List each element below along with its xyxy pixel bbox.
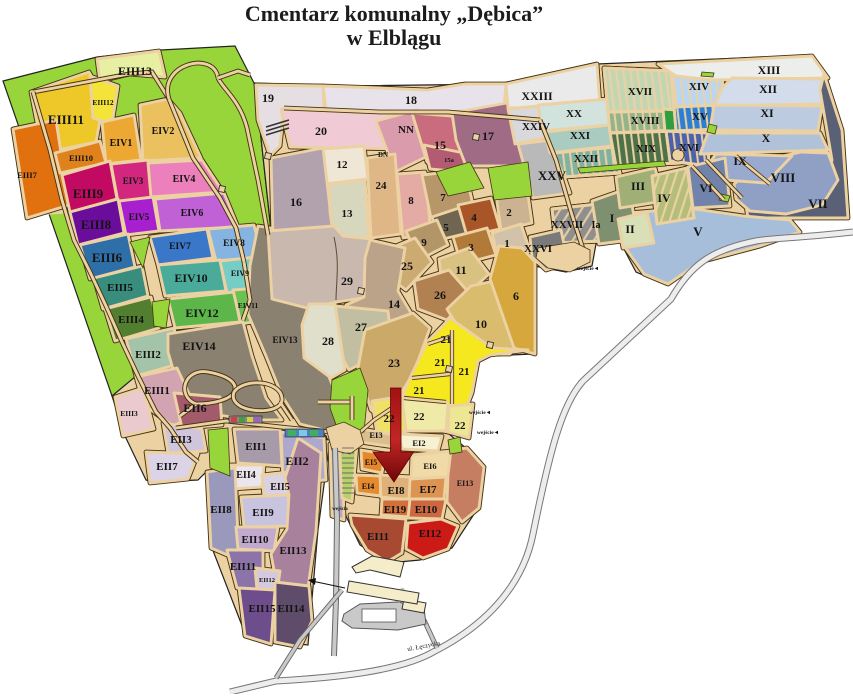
svg-text:XI: XI [760,106,774,120]
svg-text:X: X [762,131,771,145]
svg-text:XX: XX [566,108,582,120]
svg-text:12: 12 [337,159,349,171]
svg-text:XII: XII [759,82,777,96]
svg-text:wejście◄: wejście◄ [577,266,599,272]
svg-text:EIV12: EIV12 [185,306,218,320]
svg-text:IX: IX [733,154,747,168]
svg-text:EIV4: EIV4 [173,174,196,185]
svg-text:19: 19 [262,91,274,105]
svg-text:13: 13 [342,208,354,220]
svg-text:EIV5: EIV5 [129,212,150,222]
svg-text:EII7: EII7 [156,461,178,473]
svg-text:EIV7: EIV7 [169,242,191,252]
svg-text:EIV2: EIV2 [152,126,175,137]
svg-text:21: 21 [459,366,470,378]
svg-text:21: 21 [441,334,452,346]
svg-text:10: 10 [475,317,487,331]
svg-text:XIV: XIV [689,81,709,93]
svg-text:XIX: XIX [636,143,656,155]
svg-text:XXVII: XXVII [551,219,583,231]
svg-text:EII14: EII14 [278,603,305,615]
svg-text:EI3: EI3 [369,430,382,440]
svg-text:XVII: XVII [628,86,652,98]
svg-text:23: 23 [388,356,400,370]
svg-text:Ia: Ia [592,220,601,231]
svg-text:w Elblągu: w Elblągu [347,25,442,50]
svg-text:11: 11 [455,263,466,277]
svg-text:8: 8 [408,195,414,207]
svg-text:VI: VI [699,181,713,195]
svg-text:EIV8: EIV8 [223,239,245,249]
svg-text:XVI: XVI [679,142,699,154]
svg-text:EI4: EI4 [362,482,374,491]
svg-text:XXV: XXV [538,168,567,183]
svg-text:XVIII: XVIII [631,115,660,127]
svg-text:EIII5: EIII5 [107,282,133,294]
svg-text:4: 4 [471,212,477,224]
svg-text:15a: 15a [444,157,455,164]
svg-text:EII3: EII3 [170,434,192,446]
svg-text:22: 22 [455,420,467,432]
svg-text:NN: NN [398,124,414,136]
svg-text:17: 17 [482,129,494,143]
svg-text:EI10: EI10 [415,504,438,516]
svg-text:15: 15 [434,138,446,152]
svg-text:EII4: EII4 [236,470,255,481]
svg-text:EI7: EI7 [419,484,437,496]
svg-text:EII13: EII13 [280,545,307,557]
svg-text:IV: IV [657,191,671,205]
svg-text:EIII6: EIII6 [92,250,123,265]
svg-text:9: 9 [421,237,427,249]
svg-text:EI2: EI2 [412,438,425,448]
svg-text:XXIV: XXIV [522,121,550,133]
svg-text:EIII8: EIII8 [81,217,112,232]
svg-text:EII11: EII11 [230,561,256,573]
svg-text:V: V [693,224,703,239]
svg-text:XXVI: XXVI [524,243,552,255]
svg-text:EIII3: EIII3 [120,409,138,418]
svg-text:wejście◄: wejście◄ [477,430,499,436]
svg-text:EIII11: EIII11 [48,112,84,127]
svg-text:EII12: EII12 [259,577,275,584]
svg-text:1: 1 [504,238,510,250]
svg-text:28: 28 [322,334,334,348]
svg-text:22: 22 [414,411,426,423]
svg-text:EIII2: EIII2 [135,349,161,361]
svg-text:EIV1: EIV1 [110,138,133,149]
svg-text:EIII7: EIII7 [17,170,38,180]
svg-text:7: 7 [440,192,446,204]
svg-text:6: 6 [513,289,519,303]
svg-text:EIII1: EIII1 [144,385,170,397]
svg-text:24: 24 [376,180,388,192]
svg-text:EI5: EI5 [365,458,377,467]
svg-text:29: 29 [341,274,353,288]
svg-text:Cmentarz komunalny „Dębica”: Cmentarz komunalny „Dębica” [245,1,543,26]
svg-text:21: 21 [414,385,425,397]
svg-text:EI19: EI19 [384,504,407,516]
svg-text:EI6: EI6 [423,461,436,471]
svg-text:VIII: VIII [771,170,796,185]
svg-text:25: 25 [401,259,413,273]
svg-text:EIV3: EIV3 [123,176,144,186]
svg-text:EI11: EI11 [367,531,389,543]
svg-text:EIII10: EIII10 [69,153,93,163]
svg-text:EIII9: EIII9 [73,186,104,201]
svg-text:DN: DN [378,151,388,159]
svg-text:27: 27 [355,320,367,334]
svg-text:EIV11: EIV11 [238,301,259,310]
svg-text:EIII13: EIII13 [118,64,152,78]
svg-text:XXII: XXII [574,153,598,165]
svg-text:EII8: EII8 [210,504,232,516]
svg-text:EII2: EII2 [285,454,308,468]
svg-text:EIV14: EIV14 [182,339,215,353]
svg-text:2: 2 [506,207,512,219]
svg-text:III: III [631,179,645,193]
svg-text:EII15: EII15 [249,603,276,615]
svg-text:16: 16 [290,195,302,209]
svg-text:5: 5 [443,222,449,234]
svg-text:XV: XV [692,111,708,123]
svg-text:EIV9: EIV9 [231,269,249,278]
svg-text:20: 20 [315,124,327,138]
svg-text:II: II [625,222,635,236]
svg-text:EIV13: EIV13 [272,335,298,345]
svg-text:14: 14 [388,297,400,311]
svg-text:XXI: XXI [570,130,590,142]
svg-text:EII10: EII10 [242,534,269,546]
svg-text:EIV6: EIV6 [181,208,204,219]
svg-text:EIII12: EIII12 [92,98,114,107]
svg-text:EII5: EII5 [270,482,289,493]
svg-text:26: 26 [434,288,446,302]
svg-text:EI13: EI13 [457,479,473,488]
svg-text:I: I [610,211,615,225]
svg-text:wejścia: wejścia [332,507,348,512]
svg-text:EI12: EI12 [419,528,442,540]
svg-text:EII1: EII1 [245,441,266,453]
svg-text:wejście◄: wejście◄ [469,410,491,416]
svg-text:3: 3 [468,242,474,254]
svg-text:EII6: EII6 [183,401,206,415]
svg-text:EII9: EII9 [252,507,274,519]
svg-text:EIII4: EIII4 [118,314,144,326]
svg-text:22: 22 [384,413,396,425]
svg-text:18: 18 [405,93,417,107]
svg-text:EI8: EI8 [387,485,405,497]
svg-text:21: 21 [435,357,446,369]
svg-text:VII: VII [808,196,828,211]
svg-text:XXIII: XXIII [521,89,553,103]
svg-text:XIII: XIII [758,63,781,77]
svg-text:EIV10: EIV10 [174,271,207,285]
